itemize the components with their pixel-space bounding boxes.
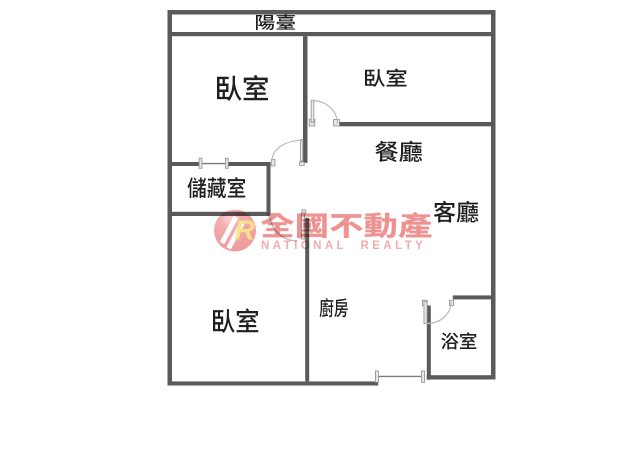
svg-text:R: R xyxy=(235,215,256,246)
svg-text:NATIONAL REALTY: NATIONAL REALTY xyxy=(261,240,426,252)
